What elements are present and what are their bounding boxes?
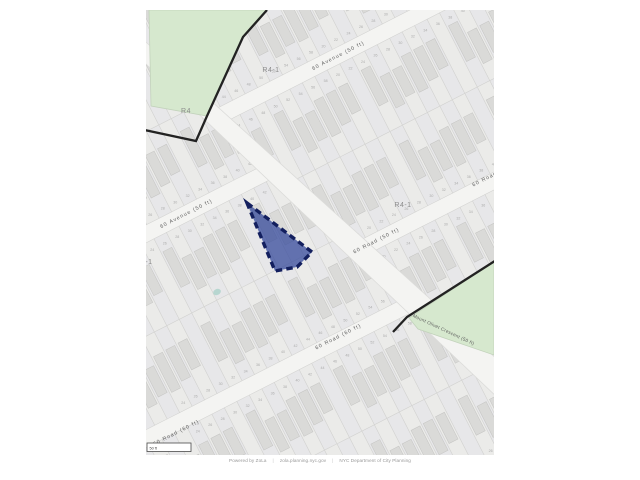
lot-number: 28 <box>175 235 179 239</box>
lot-number: 46 <box>318 331 322 335</box>
lot-number: 24 <box>361 60 365 64</box>
lot-number: 40 <box>236 169 240 173</box>
lot-number: 28 <box>371 19 375 23</box>
lot-number: 30 <box>444 223 448 227</box>
lot-number: 28 <box>386 47 390 51</box>
lot-number: 46 <box>333 360 337 364</box>
lot-number: 38 <box>479 169 483 173</box>
lot-number: 40 <box>296 379 300 383</box>
lot-number: 52 <box>286 98 290 102</box>
lot-number: 22 <box>349 66 353 70</box>
lot-number: 32 <box>411 35 415 39</box>
zoning-district-label: R4 <box>181 108 191 115</box>
lot-number: 56 <box>311 85 315 89</box>
lot-number: 36 <box>211 181 215 185</box>
map-canvas[interactable]: 5456582022242628303234363840424446485052… <box>146 10 494 455</box>
lot-number: 36 <box>467 175 471 179</box>
footer: Powered by ZoLa | zola.planning.nyc.gov … <box>0 458 640 463</box>
lot-number: 24 <box>346 32 350 36</box>
lot-number: 42 <box>293 344 297 348</box>
lot-number: 38 <box>448 16 452 20</box>
lot-number: 28 <box>161 207 165 211</box>
lot-number: 36 <box>481 204 485 208</box>
zola-map-page: 5456582022242628303234363840424446485052… <box>0 0 640 480</box>
lot-number: 44 <box>320 366 324 370</box>
lot-number: 38 <box>283 385 287 389</box>
lot-number: 26 <box>373 54 377 58</box>
lot-number: 24 <box>196 430 200 434</box>
lot-number: 54 <box>383 334 387 338</box>
lot-number: 58 <box>324 79 328 83</box>
lot-number: 40 <box>492 162 494 166</box>
lot-number: 30 <box>188 229 192 233</box>
lot-number: 34 <box>244 369 248 373</box>
lot-number: 44 <box>222 95 226 99</box>
lot-number: 32 <box>456 216 460 220</box>
lot-number: 42 <box>308 372 312 376</box>
lot-number: 50 <box>259 76 263 80</box>
lot-number: 46 <box>234 89 238 93</box>
lot-number: 54 <box>368 306 372 310</box>
lot-number: 26 <box>194 395 198 399</box>
lot-number: 36 <box>436 22 440 26</box>
lot-number: 34 <box>198 188 202 192</box>
lot-number: 56 <box>381 299 385 303</box>
lot-number: 48 <box>331 325 335 329</box>
lot-number: 26 <box>359 25 363 29</box>
lot-number: 58 <box>408 322 412 326</box>
lot-number: 22 <box>379 220 383 224</box>
zoning-district-label: R4-1 <box>146 259 153 266</box>
lot-number: 26 <box>419 235 423 239</box>
footer-separator: | <box>332 458 333 463</box>
lot-number: 40 <box>281 350 285 354</box>
lot-number: 24 <box>406 242 410 246</box>
lot-number: 22 <box>334 38 338 42</box>
lot-number: 48 <box>261 111 265 115</box>
lot-number: 54 <box>284 63 288 67</box>
lot-number: 30 <box>384 12 388 16</box>
lot-number: 26 <box>163 242 167 246</box>
lot-number: 36 <box>271 391 275 395</box>
scale-bar: 50 ft <box>147 443 191 452</box>
lot-number: 30 <box>429 194 433 198</box>
lot-number: 24 <box>181 401 185 405</box>
lot-number: 36 <box>256 363 260 367</box>
lot-number: 38 <box>269 357 273 361</box>
lot-number: 22 <box>394 248 398 252</box>
lot-number: 28 <box>417 201 421 205</box>
lot-number: 58 <box>309 51 313 55</box>
lot-number: 26 <box>148 213 152 217</box>
lot-number: 32 <box>231 376 235 380</box>
lot-number: 38 <box>238 203 242 207</box>
lot-number: 44 <box>306 337 310 341</box>
lot-number: 20 <box>367 226 371 230</box>
scale-bar-label: 50 ft <box>150 447 158 451</box>
lot-number: 34 <box>258 398 262 402</box>
lot-number: 50 <box>343 318 347 322</box>
zoning-district-label: R4-1 <box>394 202 411 209</box>
lot-number: 52 <box>370 341 374 345</box>
lot-number: 30 <box>219 382 223 386</box>
lot-number: 26 <box>208 423 212 427</box>
tax-lot-map: 5456582022242628303234363840424446485052… <box>146 10 494 455</box>
lot-number: 50 <box>274 105 278 109</box>
lot-number: 54 <box>299 92 303 96</box>
lot-number: 52 <box>356 312 360 316</box>
lot-number: 30 <box>398 41 402 45</box>
lot-number: 56 <box>297 57 301 61</box>
lot-number: 32 <box>442 188 446 192</box>
lot-number: 24 <box>392 213 396 217</box>
lot-number: 32 <box>246 404 250 408</box>
lot-number: 34 <box>423 28 427 32</box>
lot-number: 40 <box>461 10 465 13</box>
lot-number: 48 <box>345 353 349 357</box>
lot-number: 30 <box>173 200 177 204</box>
lot-number: 28 <box>206 388 210 392</box>
zoning-district-label: R4-1 <box>262 67 279 74</box>
lot-number: 28 <box>431 229 435 233</box>
lot-number: 42 <box>263 191 267 195</box>
lot-number: 26 <box>489 449 493 453</box>
lot-number: 20 <box>336 73 340 77</box>
footer-powered-text: Powered by ZoLa <box>229 458 267 463</box>
lot-number: 32 <box>186 194 190 198</box>
lot-number: 20 <box>322 44 326 48</box>
lot-number: 34 <box>213 216 217 220</box>
lot-number: 34 <box>454 181 458 185</box>
lot-number: 46 <box>249 117 253 121</box>
lot-number: 50 <box>358 347 362 351</box>
lot-number: 30 <box>233 411 237 415</box>
lot-number: 38 <box>223 175 227 179</box>
lot-number: 32 <box>200 222 204 226</box>
footer-separator: | <box>273 458 274 463</box>
lot-number: 34 <box>469 210 473 214</box>
lot-number: 40 <box>250 197 254 201</box>
lot-number: 24 <box>150 248 154 252</box>
footer-agency-text: NYC Department of City Planning <box>339 458 411 463</box>
lot-number: 28 <box>221 417 225 421</box>
footer-site-link[interactable]: zola.planning.nyc.gov <box>280 458 326 463</box>
lot-number: 48 <box>247 82 251 86</box>
lot-number: 36 <box>225 210 229 214</box>
